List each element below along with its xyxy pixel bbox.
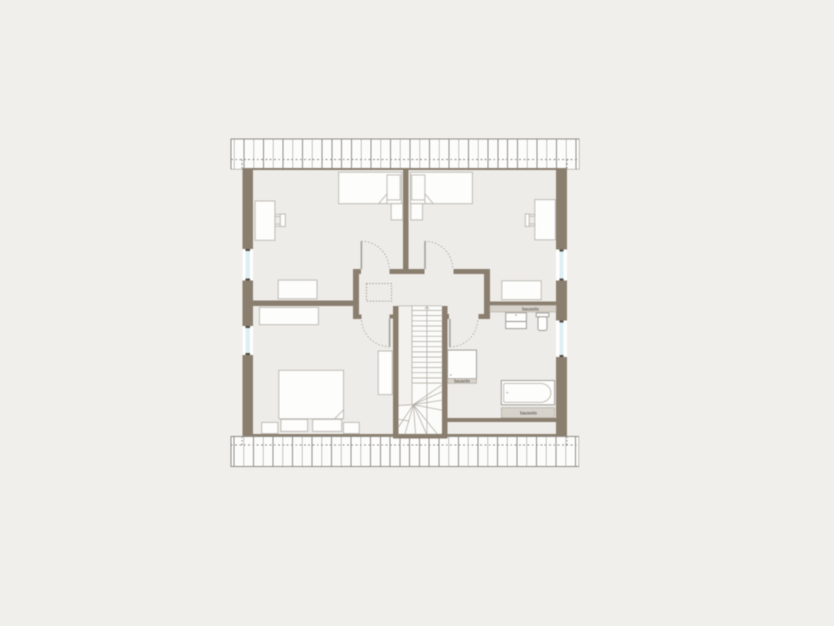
svg-text:bauseits: bauseits	[520, 411, 538, 416]
svg-text:bauseits: bauseits	[454, 379, 470, 384]
svg-text:bauseits: bauseits	[522, 307, 540, 312]
